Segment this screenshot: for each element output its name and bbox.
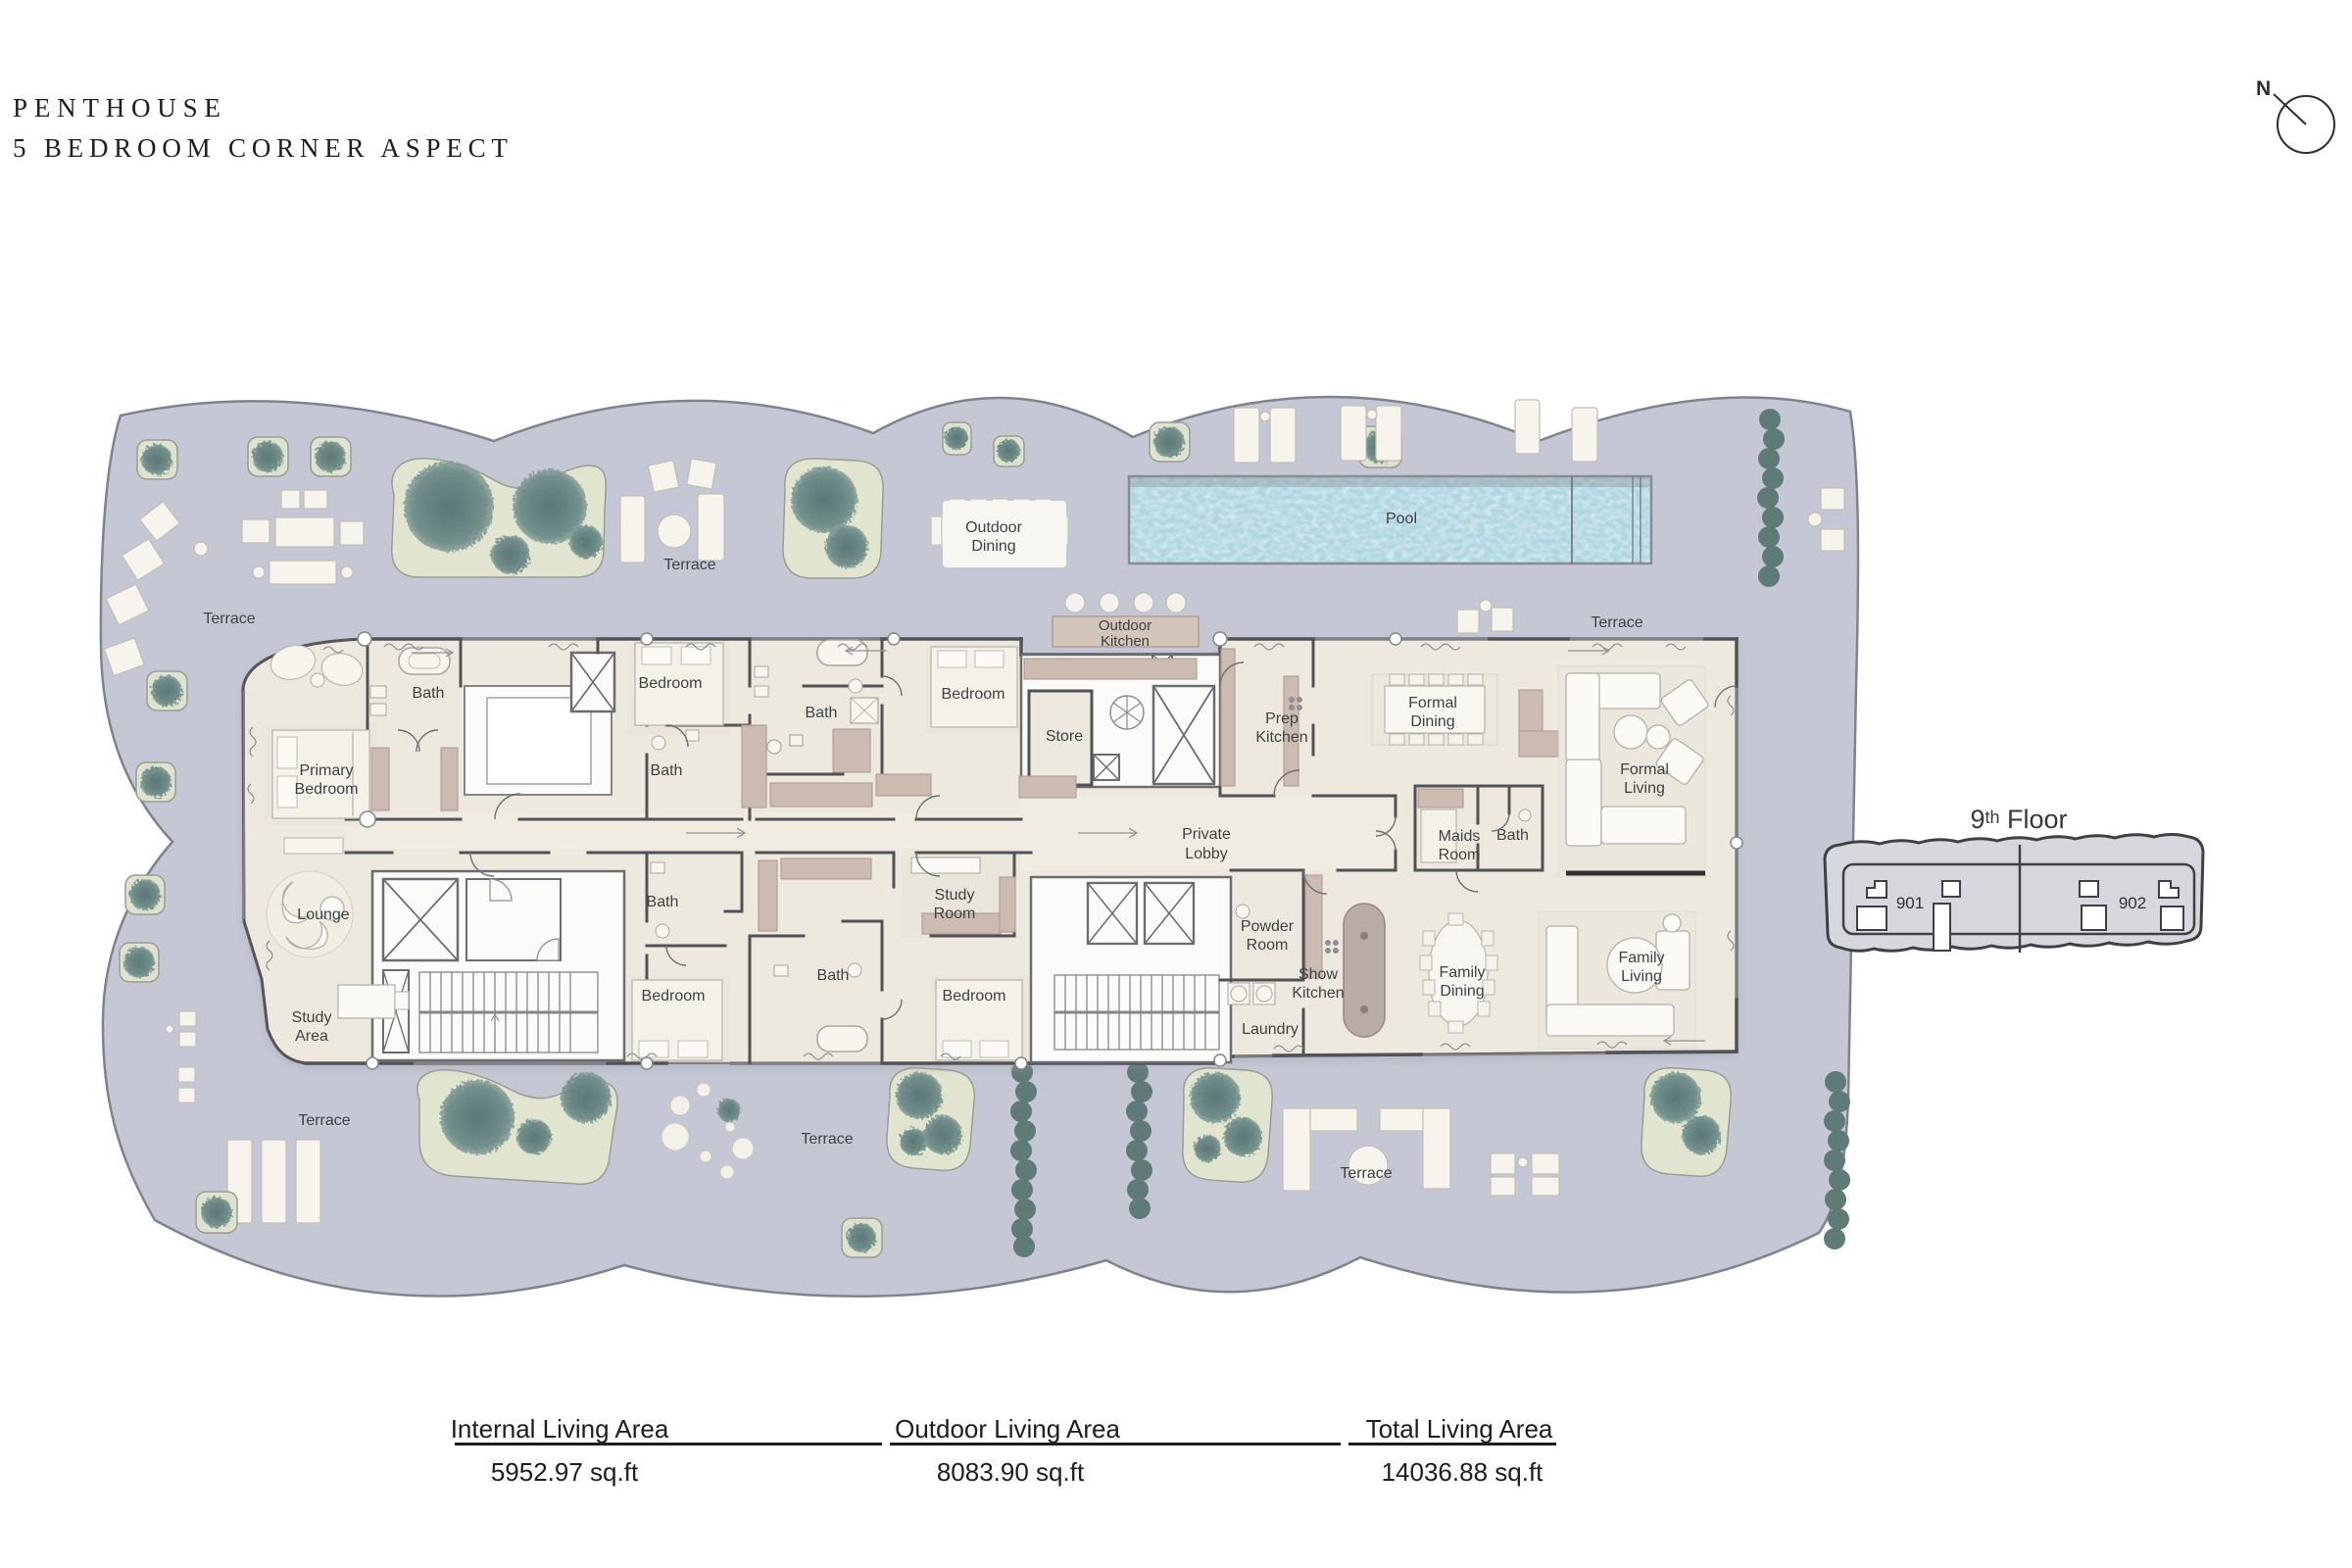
svg-text:PENTHOUSE: PENTHOUSE — [13, 93, 227, 122]
svg-text:Bedroom: Bedroom — [295, 781, 359, 798]
svg-text:Show: Show — [1298, 966, 1338, 983]
svg-text:Room: Room — [1439, 847, 1481, 863]
svg-text:Internal Living Area: Internal Living Area — [451, 1414, 669, 1444]
svg-text:Dining: Dining — [1410, 713, 1454, 730]
svg-text:Bedroom: Bedroom — [942, 686, 1005, 703]
svg-text:Laundry: Laundry — [1242, 1021, 1298, 1038]
svg-text:Terrace: Terrace — [203, 611, 255, 627]
svg-text:Family: Family — [1618, 950, 1664, 966]
svg-text:Terrace: Terrace — [298, 1112, 350, 1129]
svg-text:Living: Living — [1624, 780, 1665, 797]
svg-text:Bedroom: Bedroom — [943, 988, 1006, 1004]
svg-text:Formal: Formal — [1620, 761, 1669, 778]
svg-text:Area: Area — [295, 1028, 328, 1045]
svg-text:9th Floor: 9th Floor — [1970, 805, 2067, 834]
svg-text:Bath: Bath — [817, 967, 850, 984]
svg-text:Room: Room — [1247, 937, 1289, 954]
svg-text:Bath: Bath — [651, 762, 683, 779]
svg-text:Maids: Maids — [1439, 828, 1481, 845]
svg-text:Primary: Primary — [299, 762, 353, 779]
svg-text:Bedroom: Bedroom — [642, 988, 706, 1004]
svg-text:Kitchen: Kitchen — [1292, 985, 1344, 1002]
svg-text:5 BEDROOM CORNER ASPECT: 5 BEDROOM CORNER ASPECT — [13, 133, 514, 163]
svg-text:Outdoor Living Area: Outdoor Living Area — [895, 1414, 1120, 1444]
svg-text:Dining: Dining — [1440, 983, 1484, 1000]
svg-text:Private: Private — [1182, 826, 1231, 843]
svg-text:902: 902 — [2119, 894, 2146, 912]
svg-text:N: N — [2256, 77, 2271, 100]
svg-text:Bath: Bath — [647, 894, 679, 910]
svg-text:Terrace: Terrace — [801, 1131, 853, 1148]
svg-text:Bedroom: Bedroom — [639, 675, 703, 692]
svg-text:Pool: Pool — [1386, 511, 1417, 527]
svg-text:Dining: Dining — [971, 538, 1015, 555]
svg-text:Terrace: Terrace — [1591, 614, 1642, 631]
svg-text:Outdoor: Outdoor — [1099, 617, 1151, 634]
svg-text:Total Living Area: Total Living Area — [1366, 1414, 1553, 1444]
svg-text:Powder: Powder — [1241, 918, 1295, 935]
svg-text:901: 901 — [1896, 894, 1924, 912]
svg-text:Lounge: Lounge — [297, 906, 349, 923]
svg-text:Store: Store — [1046, 728, 1083, 745]
svg-text:14036.88 sq.ft: 14036.88 sq.ft — [1382, 1457, 1544, 1487]
svg-text:Kitchen: Kitchen — [1255, 729, 1307, 746]
svg-text:Bath: Bath — [1496, 827, 1529, 844]
svg-text:Family: Family — [1439, 964, 1485, 981]
svg-text:Bath: Bath — [413, 685, 445, 702]
svg-text:Prep: Prep — [1265, 710, 1298, 727]
svg-text:Living: Living — [1621, 968, 1662, 985]
svg-text:Room: Room — [934, 906, 976, 922]
svg-text:Bath: Bath — [806, 705, 838, 721]
svg-text:8083.90 sq.ft: 8083.90 sq.ft — [937, 1457, 1085, 1487]
svg-text:Kitchen: Kitchen — [1101, 633, 1150, 650]
svg-text:5952.97 sq.ft: 5952.97 sq.ft — [491, 1457, 639, 1487]
svg-text:Lobby: Lobby — [1185, 846, 1228, 862]
svg-text:Terrace: Terrace — [663, 557, 715, 573]
svg-text:Terrace: Terrace — [1340, 1165, 1392, 1182]
svg-text:Formal: Formal — [1408, 695, 1457, 711]
svg-text:Outdoor: Outdoor — [965, 519, 1022, 536]
svg-text:Study: Study — [935, 887, 975, 904]
svg-text:Study: Study — [292, 1009, 332, 1026]
